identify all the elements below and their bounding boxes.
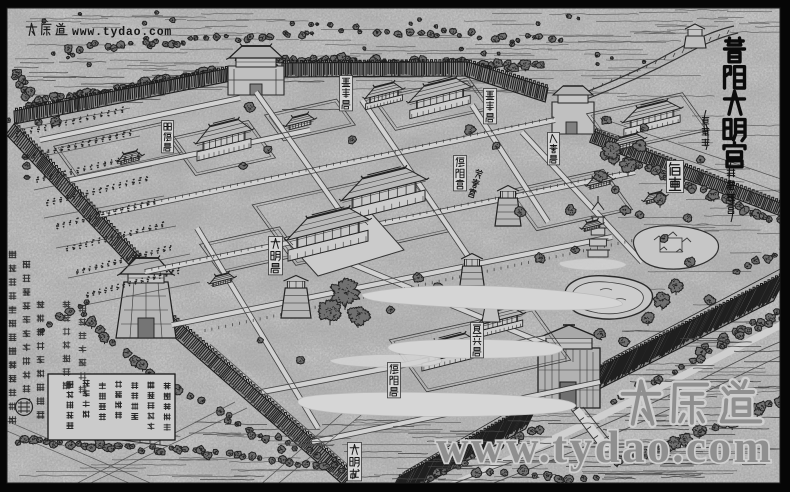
svg-text:www.tydao.com: www.tydao.com: [72, 26, 172, 39]
svg-text:www.tydao.com: www.tydao.com: [436, 422, 773, 472]
